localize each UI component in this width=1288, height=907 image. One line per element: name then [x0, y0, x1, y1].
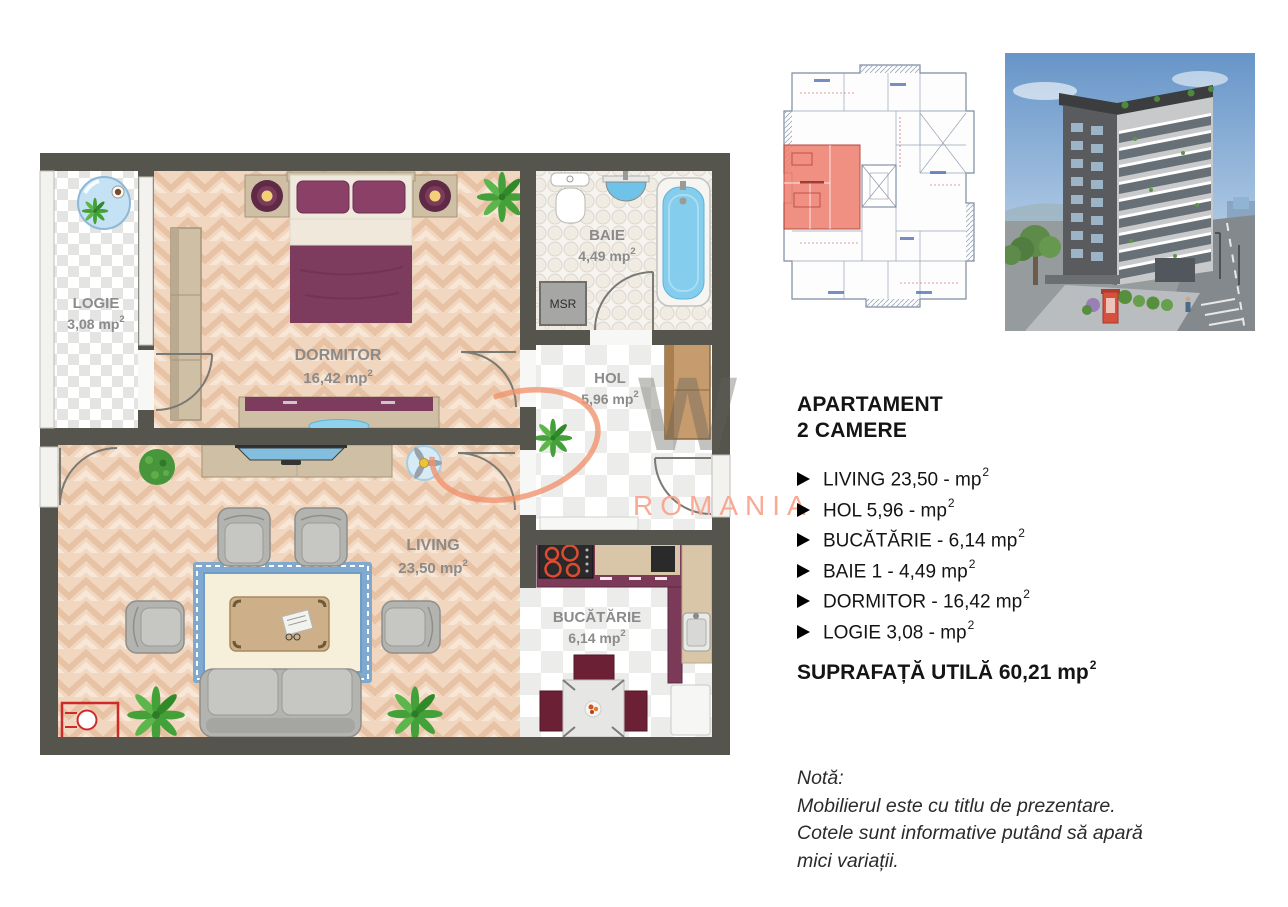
- wall-bottom: [40, 737, 730, 755]
- fence: [1045, 275, 1120, 284]
- hol-threshold: [540, 517, 638, 530]
- room-list: LIVING 23,50 - mp2 HOL 5,96 - mp2 BUCĂTĂ…: [797, 462, 1272, 645]
- bullet-triangle-icon: [797, 533, 810, 547]
- baie-label: BAIE: [589, 227, 625, 244]
- dining-chair-left: [540, 691, 563, 731]
- list-item: BUCĂTĂRIE - 6,14 mp2: [797, 523, 1272, 554]
- baie-bathtub: [657, 178, 710, 306]
- dorm-hol-door-gap: [520, 350, 536, 407]
- list-item: DORMITOR - 16,42 mp2: [797, 584, 1272, 615]
- list-item-text: HOL 5,96 - mp: [823, 500, 947, 521]
- nightstand-right: [413, 175, 457, 217]
- armchair-right: [382, 601, 440, 653]
- highlighted-apartment: [784, 145, 860, 229]
- wall-baie-hol-b: [652, 330, 712, 345]
- lamp: [262, 191, 273, 202]
- stove: [539, 544, 593, 578]
- sofa: [200, 669, 361, 737]
- logie-area: 3,08 mp2: [67, 314, 124, 332]
- apartment-details: APARTAMENT 2 CAMERE LIVING 23,50 - mp2 H…: [797, 392, 1272, 685]
- list-item-text: BUCĂTĂRIE - 6,14 mp: [823, 530, 1017, 551]
- bullet-triangle-icon: [797, 594, 810, 608]
- hol-area: 5,96 mp2: [581, 389, 638, 407]
- wall-logie-dormitor-b: [138, 410, 154, 428]
- note-line: mici variații.: [797, 848, 1237, 876]
- list-item-text: DORMITOR - 16,42 mp: [823, 591, 1022, 612]
- wall-right-upper: [712, 153, 730, 455]
- dining-chair-top: [574, 655, 614, 681]
- bullet-triangle-icon: [797, 564, 810, 578]
- bullet-triangle-icon: [797, 625, 810, 639]
- page: MSR: [0, 0, 1288, 907]
- balcony-door-gap: [40, 447, 58, 507]
- kitchen-sink: [683, 613, 710, 651]
- armchair-top-left: [218, 508, 270, 566]
- plant-living-right: [387, 686, 442, 741]
- msr-label: MSR: [550, 297, 577, 311]
- wall-vertical-a: [520, 171, 536, 350]
- site-plan-thumbnail: [770, 53, 988, 321]
- entrance: [1155, 258, 1195, 282]
- wall-top: [40, 153, 730, 171]
- plant-living-left: [127, 686, 185, 744]
- logie-table: [78, 177, 130, 229]
- plant-dormitor: [477, 172, 527, 222]
- logie-rail: [40, 171, 54, 428]
- list-item-text: LOGIE 3,08 - mp: [823, 622, 967, 643]
- bucatarie-area: 6,14 mp2: [568, 628, 625, 646]
- armchair-top-right: [295, 508, 347, 566]
- list-item: BAIE 1 - 4,49 mp2: [797, 554, 1272, 585]
- building: [1059, 85, 1214, 285]
- wall-hol-kitchen: [536, 530, 712, 545]
- living-area: 23,50 mp2: [398, 558, 468, 577]
- pedestrian: [1186, 297, 1191, 313]
- wall-right-lower: [712, 517, 730, 755]
- bullet-triangle-icon: [797, 472, 810, 486]
- baie-toilet: [551, 173, 589, 223]
- armchair-left: [126, 601, 184, 653]
- title-line-2: 2 CAMERE: [797, 418, 1272, 444]
- hol-label: HOL: [594, 370, 626, 387]
- dormitor-dresser: [239, 397, 439, 433]
- bullet-triangle-icon: [797, 503, 810, 517]
- title-line-1: APARTAMENT: [797, 392, 1272, 418]
- hol-cabinet: [665, 341, 710, 439]
- wall-vertical-c: [520, 515, 536, 588]
- entrance-door-gap: [712, 455, 730, 517]
- plant-hol: [534, 419, 572, 457]
- list-item: HOL 5,96 - mp2: [797, 493, 1272, 524]
- logie-dorm-door-gap: [138, 350, 154, 410]
- dormitor-area: 16,42 mp2: [303, 368, 373, 387]
- dormitor-bed: [287, 172, 415, 323]
- living-label: LIVING: [406, 537, 459, 554]
- logie-label: LOGIE: [73, 295, 120, 312]
- wall-baie-hol-a: [536, 330, 590, 345]
- dining-chair-right: [624, 691, 647, 731]
- phone-booth: [1101, 289, 1120, 323]
- wardrobe: [171, 228, 201, 420]
- elevator-core: [862, 165, 896, 207]
- list-item: LOGIE 3,08 - mp2: [797, 615, 1272, 646]
- wall-left-lower: [40, 507, 58, 737]
- list-item-text: BAIE 1 - 4,49 mp: [823, 561, 968, 582]
- bush-plant: [139, 449, 175, 485]
- list-item-text: LIVING 23,50 - mp: [823, 469, 981, 490]
- baie-door-gap: [590, 330, 652, 345]
- nightstand-left: [245, 175, 289, 217]
- bucatarie-label: BUCĂTĂRIE: [553, 609, 641, 626]
- note-line: Cotele sunt informative putând să apară: [797, 820, 1237, 848]
- note-line: Mobilierul este cu titlu de prezentare.: [797, 793, 1237, 821]
- dormitor-label: DORMITOR: [295, 347, 382, 364]
- kitchen-cabinet-white: [671, 685, 710, 735]
- note: Notă: Mobilierul este cu titlu de prezen…: [797, 765, 1237, 875]
- logie-glass-door: [139, 177, 153, 345]
- wall-dormitor-living: [40, 428, 536, 445]
- coffee-table: [230, 597, 329, 651]
- lamp: [430, 191, 441, 202]
- baie-area: 4,49 mp2: [578, 246, 635, 264]
- washing-machine: MSR: [540, 282, 586, 325]
- wall-vertical-b: [520, 407, 536, 450]
- living-hol-door-gap: [520, 450, 536, 515]
- building-render-thumbnail: [1005, 53, 1255, 331]
- ceiling-fan: [407, 446, 442, 480]
- note-line: Notă:: [797, 765, 1237, 793]
- floor-plan: MSR: [35, 145, 735, 765]
- total-area: SUPRAFAȚĂ UTILĂ 60,21 mp2: [797, 660, 1272, 685]
- list-item: LIVING 23,50 - mp2: [797, 462, 1272, 493]
